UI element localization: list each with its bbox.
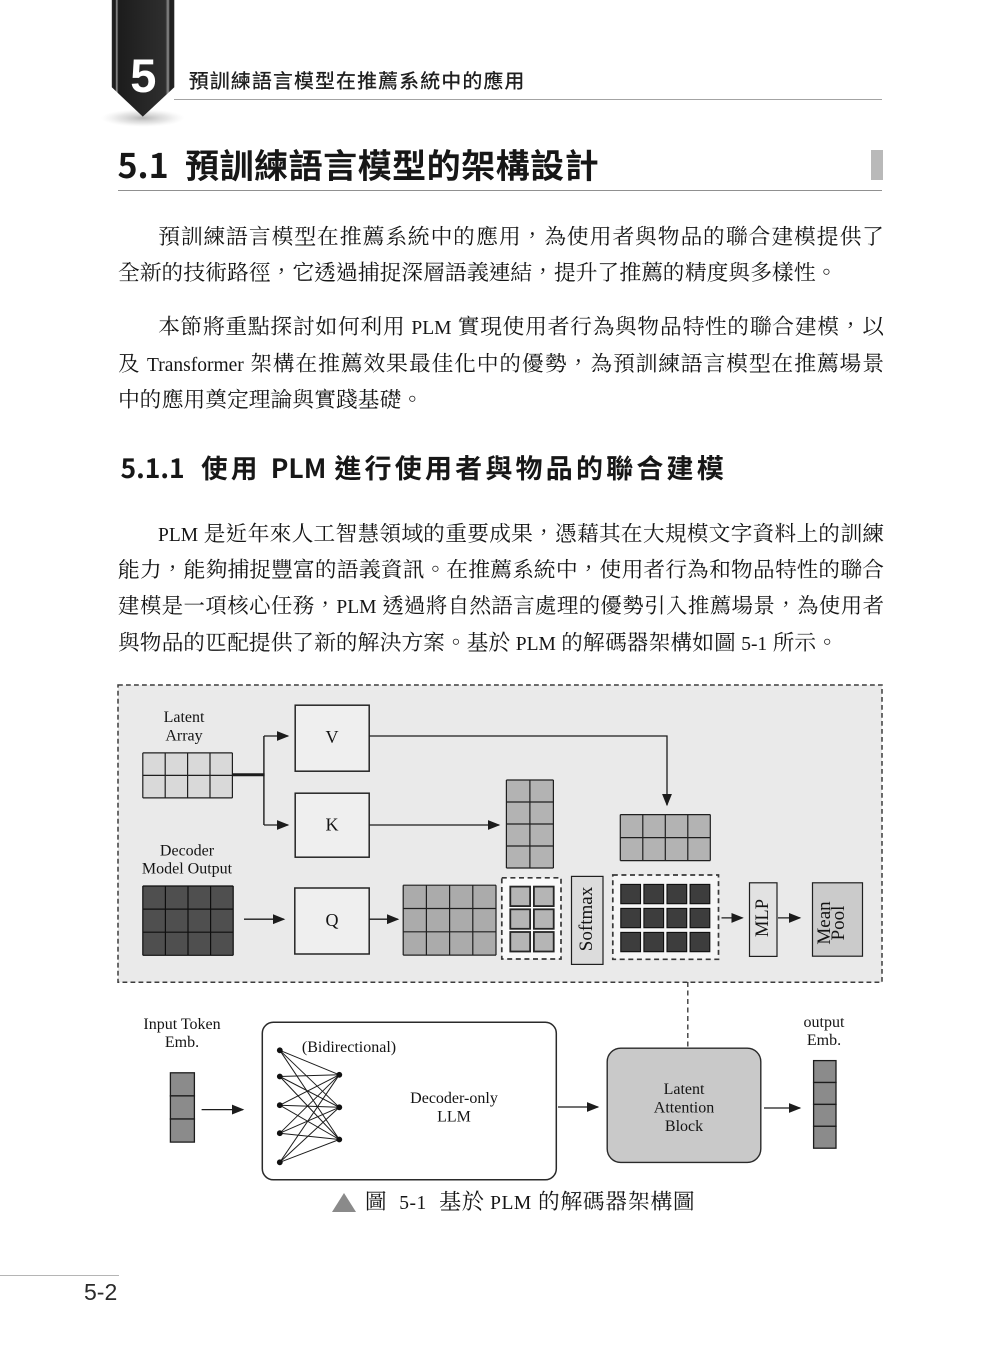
svg-text:Emb.: Emb. — [165, 1034, 199, 1051]
svg-text:5: 5 — [130, 49, 156, 102]
svg-text:Array: Array — [165, 728, 202, 745]
svg-text:Decoder-only: Decoder-only — [410, 1090, 498, 1107]
svg-text:MLP: MLP — [753, 899, 773, 937]
svg-text:K: K — [326, 815, 339, 835]
svg-text:Input Token: Input Token — [143, 1016, 220, 1033]
svg-text:Model Output: Model Output — [142, 861, 233, 878]
svg-text:output: output — [804, 1014, 845, 1031]
svg-text:Latent: Latent — [664, 1081, 705, 1098]
svg-text:Decoder: Decoder — [160, 843, 215, 860]
svg-text:LLM: LLM — [437, 1109, 471, 1126]
svg-text:Attention: Attention — [654, 1100, 714, 1117]
svg-text:Emb.: Emb. — [807, 1032, 841, 1049]
svg-text:Softmax: Softmax — [576, 886, 597, 951]
svg-text:Pool: Pool — [828, 906, 849, 941]
svg-text:Block: Block — [665, 1118, 703, 1135]
svg-text:Latent: Latent — [164, 709, 205, 726]
svg-text:(Bidirectional): (Bidirectional) — [302, 1039, 396, 1056]
svg-text:Q: Q — [326, 910, 339, 930]
svg-text:V: V — [326, 727, 339, 747]
